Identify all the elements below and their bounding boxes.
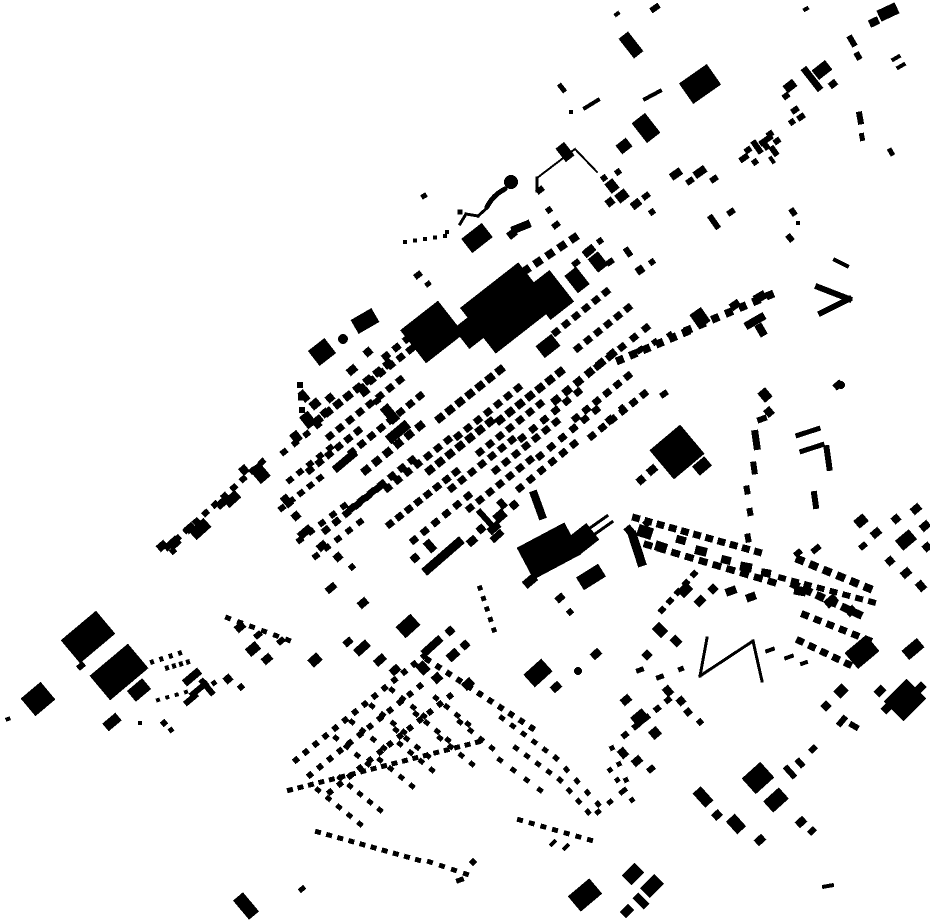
building [299, 407, 305, 413]
building [549, 839, 557, 847]
building [467, 727, 475, 735]
building [545, 768, 553, 776]
building [795, 636, 805, 646]
building [683, 707, 693, 717]
building [620, 904, 635, 919]
building [910, 503, 923, 516]
building [643, 540, 654, 549]
building [657, 605, 666, 614]
building [900, 567, 913, 580]
building [745, 592, 757, 603]
building [601, 287, 612, 297]
building [426, 708, 434, 716]
building [177, 650, 182, 656]
building [572, 376, 584, 388]
building [835, 571, 846, 582]
building [591, 295, 602, 305]
building [587, 431, 598, 441]
building [915, 580, 928, 593]
building [382, 446, 394, 458]
building [403, 240, 408, 245]
building [552, 754, 560, 762]
building [494, 414, 506, 426]
building [811, 491, 819, 510]
boundary-line [818, 287, 849, 299]
building [551, 827, 558, 833]
building [306, 481, 315, 490]
building [423, 719, 431, 727]
building [583, 335, 594, 345]
building [356, 790, 364, 798]
building [314, 786, 322, 794]
building [632, 113, 661, 143]
building [445, 669, 453, 677]
building [201, 508, 210, 517]
building [520, 730, 528, 738]
building [568, 423, 579, 433]
building [325, 582, 338, 594]
building [636, 524, 654, 540]
building [617, 747, 630, 760]
building [458, 210, 463, 215]
building [487, 451, 498, 461]
building [523, 659, 552, 688]
building [584, 808, 592, 816]
building [391, 760, 398, 766]
building [659, 389, 669, 399]
building [810, 543, 822, 554]
building [800, 610, 810, 619]
building [321, 732, 329, 740]
building [754, 834, 767, 847]
building [536, 465, 547, 475]
building [556, 240, 568, 252]
building [380, 763, 387, 769]
building [464, 388, 476, 400]
building [807, 642, 817, 652]
building [396, 614, 421, 639]
building [763, 787, 789, 812]
building [507, 710, 515, 718]
building [465, 503, 476, 513]
building [794, 757, 805, 768]
building [623, 371, 634, 381]
building [370, 844, 377, 850]
boundary-line [753, 641, 762, 681]
building [413, 496, 424, 506]
building [485, 439, 496, 449]
building [467, 467, 478, 477]
building [562, 843, 570, 851]
building [631, 514, 641, 523]
building [765, 290, 775, 300]
building [345, 415, 356, 425]
building [895, 529, 917, 551]
building [454, 744, 461, 750]
building [561, 396, 572, 406]
building [613, 311, 624, 321]
building [919, 520, 930, 533]
building [371, 692, 379, 700]
building [438, 863, 445, 870]
building [498, 714, 506, 722]
building [302, 429, 311, 438]
building [160, 719, 168, 727]
building [581, 303, 592, 313]
building [634, 264, 645, 275]
building [604, 178, 619, 194]
building [335, 423, 346, 433]
building [532, 256, 544, 268]
building [298, 885, 307, 893]
building [285, 475, 294, 484]
building [783, 79, 798, 93]
building [477, 459, 488, 469]
building [750, 461, 758, 475]
building [325, 795, 333, 803]
building [296, 488, 305, 497]
building [369, 736, 377, 744]
building [484, 372, 496, 384]
building [614, 168, 622, 176]
building [563, 766, 571, 774]
building [594, 800, 602, 808]
building [444, 625, 455, 636]
building [584, 366, 596, 378]
building [430, 517, 441, 527]
building [493, 399, 504, 409]
building [556, 776, 564, 784]
building [796, 221, 800, 225]
boundary-line [645, 91, 660, 99]
building [391, 342, 402, 352]
building [623, 777, 630, 784]
building [333, 534, 342, 543]
building [668, 524, 678, 533]
building [615, 355, 625, 365]
building [308, 338, 336, 366]
building [509, 722, 517, 730]
building [333, 441, 344, 451]
building [825, 620, 835, 629]
building [741, 544, 751, 553]
building [693, 786, 714, 807]
building [412, 710, 420, 718]
building [443, 703, 451, 711]
building [351, 708, 359, 716]
building [326, 755, 334, 763]
building [464, 742, 471, 748]
building [751, 158, 759, 166]
building [420, 192, 428, 199]
building [652, 622, 668, 638]
building [615, 138, 632, 155]
building [412, 755, 419, 761]
building [795, 816, 808, 829]
building [523, 776, 531, 784]
building [620, 730, 629, 739]
building [376, 423, 387, 433]
building [457, 475, 468, 485]
building [284, 637, 291, 644]
building [406, 690, 414, 698]
building [550, 681, 563, 694]
building [376, 806, 384, 814]
building [646, 764, 656, 774]
building [159, 656, 164, 662]
building [822, 883, 835, 889]
building [901, 638, 924, 660]
building [525, 455, 536, 465]
building [822, 566, 833, 577]
building [623, 246, 634, 258]
building [368, 702, 376, 710]
building [855, 595, 864, 603]
building [516, 817, 523, 823]
building [513, 383, 524, 393]
building [539, 414, 550, 424]
building [600, 174, 608, 182]
building [414, 420, 426, 432]
building [579, 414, 590, 424]
building [509, 766, 517, 774]
building [525, 407, 536, 417]
building [528, 820, 535, 826]
building [361, 700, 369, 708]
building [581, 404, 592, 414]
building [492, 508, 508, 523]
building [403, 735, 411, 743]
building [332, 551, 343, 562]
building [171, 663, 176, 669]
building [298, 394, 304, 400]
building [395, 375, 406, 385]
building [76, 661, 86, 671]
building [248, 623, 255, 630]
building [856, 111, 864, 125]
building [178, 661, 183, 667]
building [503, 391, 514, 401]
building [182, 668, 202, 687]
building [568, 878, 602, 911]
building [185, 659, 190, 665]
building [656, 520, 666, 529]
building [167, 726, 174, 733]
building [473, 415, 484, 425]
building [318, 779, 325, 785]
building [849, 577, 860, 588]
building [342, 390, 354, 402]
building [640, 874, 664, 898]
building [550, 394, 562, 406]
building [210, 679, 217, 686]
building [696, 718, 704, 726]
building [424, 464, 436, 476]
building [550, 405, 561, 415]
building [337, 835, 344, 841]
building [389, 720, 397, 728]
building [432, 482, 443, 492]
building [469, 858, 477, 866]
building [635, 474, 646, 485]
building [351, 308, 380, 334]
building [477, 585, 483, 591]
round-building-dot [837, 381, 845, 389]
building [325, 431, 336, 441]
building [867, 598, 876, 606]
building [593, 327, 604, 337]
building [483, 407, 494, 417]
building [670, 549, 681, 558]
building [5, 716, 11, 721]
building [222, 673, 233, 684]
building [586, 837, 593, 843]
building [308, 397, 321, 410]
building [628, 397, 639, 407]
building [486, 697, 494, 705]
building [828, 79, 839, 89]
building [554, 366, 566, 378]
building [680, 527, 690, 536]
building [858, 541, 868, 551]
building [376, 756, 384, 764]
building [394, 511, 405, 521]
building [823, 445, 833, 472]
building [315, 473, 324, 482]
park-path-curve [487, 189, 505, 207]
building [444, 404, 456, 416]
building [380, 684, 388, 692]
building [297, 784, 304, 790]
building [433, 728, 441, 736]
building [707, 583, 718, 594]
building [524, 390, 536, 402]
building [743, 146, 752, 155]
building [783, 764, 797, 779]
building [514, 398, 526, 410]
building [573, 777, 581, 785]
building [512, 744, 520, 752]
building [544, 248, 556, 260]
building [452, 500, 463, 510]
building [370, 766, 377, 772]
building [488, 744, 496, 752]
building [850, 630, 860, 639]
building [505, 471, 516, 481]
building [362, 346, 373, 357]
building [874, 685, 887, 698]
building [751, 430, 761, 451]
building [831, 653, 841, 663]
building [415, 391, 426, 401]
building [614, 777, 621, 784]
building [450, 867, 457, 874]
building [335, 803, 343, 811]
building [528, 724, 536, 732]
building [646, 464, 659, 477]
building [302, 748, 310, 756]
building [757, 387, 772, 403]
building [540, 823, 547, 829]
building [571, 258, 581, 268]
building [534, 760, 542, 768]
building [710, 313, 720, 323]
building [453, 431, 464, 441]
building [641, 323, 652, 333]
building [359, 841, 366, 847]
building [21, 682, 56, 716]
building [641, 191, 651, 201]
building [464, 432, 476, 444]
building [698, 557, 709, 566]
building [416, 682, 424, 690]
building [565, 787, 573, 795]
building [474, 424, 486, 436]
building [891, 54, 902, 62]
building [564, 267, 589, 294]
building [729, 541, 739, 550]
building [476, 690, 484, 698]
building [417, 758, 425, 766]
building [461, 223, 493, 253]
building [551, 417, 562, 427]
building [591, 396, 602, 406]
building [765, 646, 776, 653]
building [566, 608, 574, 616]
building [738, 153, 750, 164]
building [515, 415, 526, 425]
building [426, 859, 433, 866]
building [563, 830, 570, 836]
building [620, 694, 633, 707]
round-building-dot [338, 334, 348, 344]
building [385, 383, 396, 393]
building [534, 382, 546, 394]
building [896, 62, 907, 70]
building [777, 574, 786, 582]
building [413, 744, 421, 752]
building [641, 649, 652, 660]
building [544, 374, 556, 386]
building [224, 615, 231, 622]
building [357, 597, 370, 610]
building [407, 749, 415, 757]
building [237, 683, 245, 691]
building [568, 232, 580, 244]
building [515, 463, 526, 473]
building [422, 489, 433, 499]
building [390, 676, 398, 684]
building [464, 720, 472, 728]
building [607, 767, 614, 774]
building [463, 423, 474, 433]
building [665, 596, 674, 605]
building [756, 414, 767, 423]
building [475, 495, 486, 505]
building [441, 508, 452, 518]
building [446, 648, 461, 663]
building [396, 740, 404, 748]
building [355, 517, 364, 526]
building [619, 31, 644, 58]
building [551, 220, 561, 230]
building [724, 585, 737, 596]
building [424, 280, 432, 288]
building [497, 703, 505, 711]
building [348, 838, 355, 844]
building [590, 648, 603, 661]
building [669, 167, 683, 180]
